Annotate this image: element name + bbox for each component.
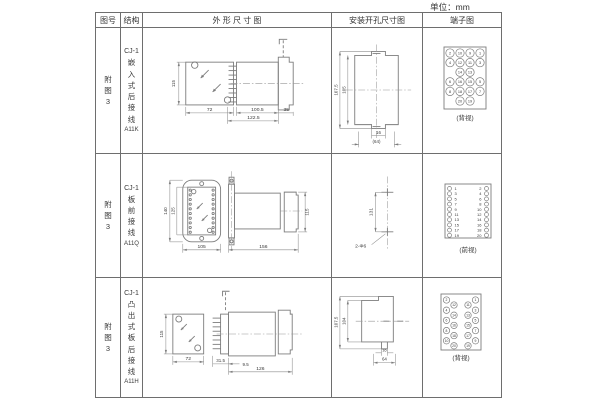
svg-text:1: 1 <box>479 51 481 55</box>
svg-text:2: 2 <box>449 51 451 55</box>
structure-name-1: 嵌入式后接线 <box>127 57 136 125</box>
cell-mounting-3: 107.5 104 16 64 <box>332 278 423 397</box>
svg-text:13: 13 <box>468 70 472 74</box>
svg-text:5: 5 <box>479 80 481 84</box>
dim-hole-pitch-1: 16 <box>376 130 381 135</box>
svg-text:3: 3 <box>479 60 481 64</box>
terminal-caption-2: (前视) <box>459 245 476 254</box>
header-terminal: 端子图 <box>423 13 501 28</box>
svg-text:12: 12 <box>452 303 456 307</box>
svg-text:11: 11 <box>466 303 470 307</box>
dim-front-depth-3: 31.5 <box>216 358 225 363</box>
terminal-grid: 2109141211314136161558181772019 <box>446 48 484 104</box>
front-view: 115 72 <box>159 314 204 365</box>
svg-text:7: 7 <box>479 89 481 93</box>
cell-mounting-1: 107.5 105 16 (64) <box>332 28 423 154</box>
cell-structure-1: CJ-1 嵌入式后接线 A11K <box>121 28 143 154</box>
svg-text:17: 17 <box>466 334 470 338</box>
mounting-drawing-3: 107.5 104 16 64 <box>332 278 422 397</box>
dim-front-outer-height-2: 140 <box>163 206 168 214</box>
series-1: CJ-1 <box>124 48 139 55</box>
spec-table: 图号 结构 外 形 尺 寸 图 安装开孔尺寸图 端子图 附图3 CJ-1 嵌入式… <box>95 12 502 398</box>
cell-structure-2: CJ-1 板前接线 A11Q <box>121 154 143 278</box>
terminal-columns: 1357911131517192468101214161820 <box>448 186 489 238</box>
cell-figure-3: 附图3 <box>96 278 121 397</box>
svg-text:7: 7 <box>475 329 477 333</box>
dim-inner-height-1: 105 <box>341 85 346 93</box>
series-2: CJ-1 <box>124 185 139 192</box>
outline-drawing-2: 140 125 105 <box>143 154 331 278</box>
terminal-stagger: 2468101214161820111315171913579 <box>443 297 478 349</box>
cell-terminal-3: 2468101214161820111315171913579 (背视) <box>423 278 501 397</box>
document-page: 单位：mm 图号 结构 外 形 尺 寸 图 安装开孔尺寸图 端子图 附图3 CJ… <box>0 0 600 400</box>
cell-figure-1: 附图3 <box>96 28 121 154</box>
svg-text:20: 20 <box>458 99 462 103</box>
side-view: 156 115 <box>229 171 310 253</box>
figure-no-2: 附图3 <box>104 199 113 233</box>
mounting-drawing-2: 131 2-Φ6 <box>332 154 422 278</box>
hole-label-2: 2-Φ6 <box>355 243 366 249</box>
front-view: 115 72 <box>171 61 234 115</box>
cell-figure-2: 附图3 <box>96 154 121 278</box>
svg-text:19: 19 <box>466 344 470 348</box>
dim-total-length-1: 122.5 <box>247 114 260 120</box>
dim-width-1: (64) <box>373 138 381 143</box>
svg-text:5: 5 <box>475 319 477 323</box>
svg-text:15: 15 <box>468 80 472 84</box>
dim-front-width-1: 72 <box>207 106 213 112</box>
structure-name-2: 板前接线 <box>127 194 136 239</box>
svg-text:19: 19 <box>455 232 460 237</box>
dim-width-3: 64 <box>382 357 387 362</box>
svg-text:8: 8 <box>446 329 448 333</box>
outline-drawing-1: 115 72 <box>143 28 331 154</box>
svg-text:3: 3 <box>475 308 477 312</box>
dim-front-width-2: 105 <box>198 243 207 249</box>
cell-structure-3: CJ-1 凸出式板后接线 A11H <box>121 278 143 397</box>
svg-text:10: 10 <box>445 339 449 343</box>
model-code-3: A11H <box>124 379 139 385</box>
svg-text:1: 1 <box>475 298 477 302</box>
dim-front-inner-height-2: 125 <box>170 206 175 214</box>
model-code-2: A11Q <box>124 241 139 247</box>
svg-text:4: 4 <box>449 60 451 64</box>
dim-outer-height-3: 107.5 <box>333 316 338 328</box>
svg-text:12: 12 <box>458 60 462 64</box>
svg-text:17: 17 <box>468 89 472 93</box>
dim-flange-depth-1: 35 <box>283 106 289 112</box>
terminal-caption-3: (背视) <box>452 353 469 362</box>
mounting-drawing-1: 107.5 105 16 (64) <box>332 28 422 154</box>
dim-body-length-3: 126 <box>256 366 265 372</box>
terminal-drawing-1: 2109141211314136161558181772019 (背视) <box>423 28 501 154</box>
side-view: 100.5 122.5 35 <box>228 39 305 124</box>
dim-gap-3: 9.5 <box>242 362 249 367</box>
svg-text:2: 2 <box>446 298 448 302</box>
dim-side-height-2: 115 <box>305 207 310 215</box>
svg-text:4: 4 <box>446 308 448 312</box>
svg-text:13: 13 <box>466 313 470 317</box>
header-figure: 图号 <box>96 13 121 28</box>
cell-mounting-2: 131 2-Φ6 <box>332 154 423 278</box>
svg-text:20: 20 <box>452 344 456 348</box>
svg-text:16: 16 <box>452 324 456 328</box>
side-view: 31.5 9.5 126 <box>213 291 303 375</box>
svg-text:18: 18 <box>458 89 462 93</box>
structure-name-3: 凸出式板后接线 <box>127 299 136 378</box>
svg-text:11: 11 <box>468 60 472 64</box>
svg-text:14: 14 <box>458 70 462 74</box>
svg-text:16: 16 <box>458 80 462 84</box>
dim-hole-pitch-2: 131 <box>369 207 375 215</box>
svg-text:6: 6 <box>446 319 448 323</box>
dim-outer-height-1: 107.5 <box>333 83 338 95</box>
cell-outline-3: 115 72 <box>143 278 332 397</box>
dim-front-width-3: 72 <box>185 356 191 362</box>
header-outline: 外 形 尺 寸 图 <box>143 13 332 28</box>
terminal-drawing-2: 1357911131517192468101214161820 (前视) <box>423 154 501 278</box>
svg-text:8: 8 <box>449 89 451 93</box>
cell-terminal-2: 1357911131517192468101214161820 (前视) <box>423 154 501 278</box>
figure-no-3: 附图3 <box>104 321 113 355</box>
header-structure: 结构 <box>121 13 143 28</box>
svg-text:10: 10 <box>458 51 462 55</box>
svg-text:6: 6 <box>449 80 451 84</box>
dim-inner-height-3: 104 <box>341 317 346 325</box>
cell-terminal-1: 2109141211314136161558181772019 (背视) <box>423 28 501 154</box>
svg-text:9: 9 <box>475 339 477 343</box>
dim-side-length-2: 156 <box>259 243 268 249</box>
model-code-1: A11K <box>124 127 138 133</box>
svg-text:20: 20 <box>477 232 482 237</box>
outline-drawing-3: 115 72 <box>143 278 331 397</box>
front-view: 140 125 105 <box>163 180 221 253</box>
svg-text:15: 15 <box>466 324 470 328</box>
series-3: CJ-1 <box>124 290 139 297</box>
svg-text:14: 14 <box>452 313 456 317</box>
cell-outline-2: 140 125 105 <box>143 154 332 278</box>
dim-body-length-1: 100.5 <box>251 106 264 112</box>
svg-text:19: 19 <box>468 99 472 103</box>
dim-hole-pitch-3: 16 <box>382 347 387 352</box>
terminal-caption-1: (背视) <box>456 113 473 122</box>
dim-front-height-1: 115 <box>171 79 176 87</box>
figure-no-1: 附图3 <box>104 74 113 108</box>
dim-front-height-3: 115 <box>159 330 164 338</box>
terminal-drawing-3: 2468101214161820111315171913579 (背视) <box>423 278 501 397</box>
svg-text:9: 9 <box>469 51 471 55</box>
header-mounting: 安装开孔尺寸图 <box>332 13 423 28</box>
cell-outline-1: 115 72 <box>143 28 332 154</box>
svg-text:18: 18 <box>452 334 456 338</box>
